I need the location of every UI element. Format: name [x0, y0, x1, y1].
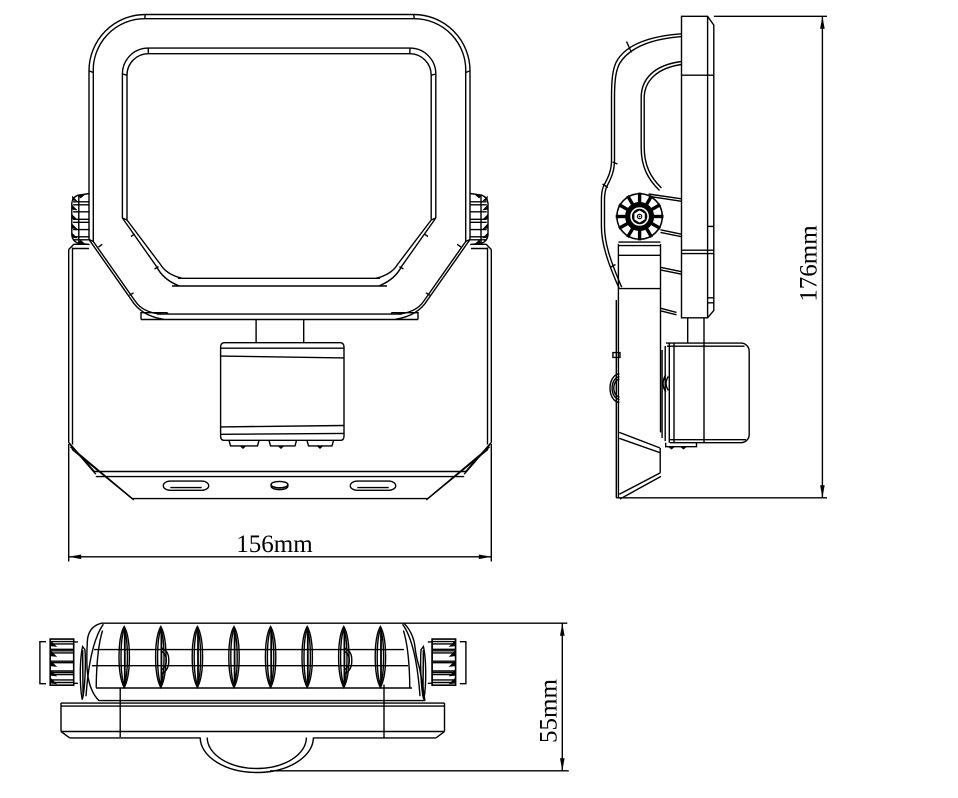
svg-text:55mm: 55mm: [536, 679, 563, 743]
svg-text:156mm: 156mm: [236, 531, 313, 558]
svg-text:176mm: 176mm: [796, 225, 823, 302]
